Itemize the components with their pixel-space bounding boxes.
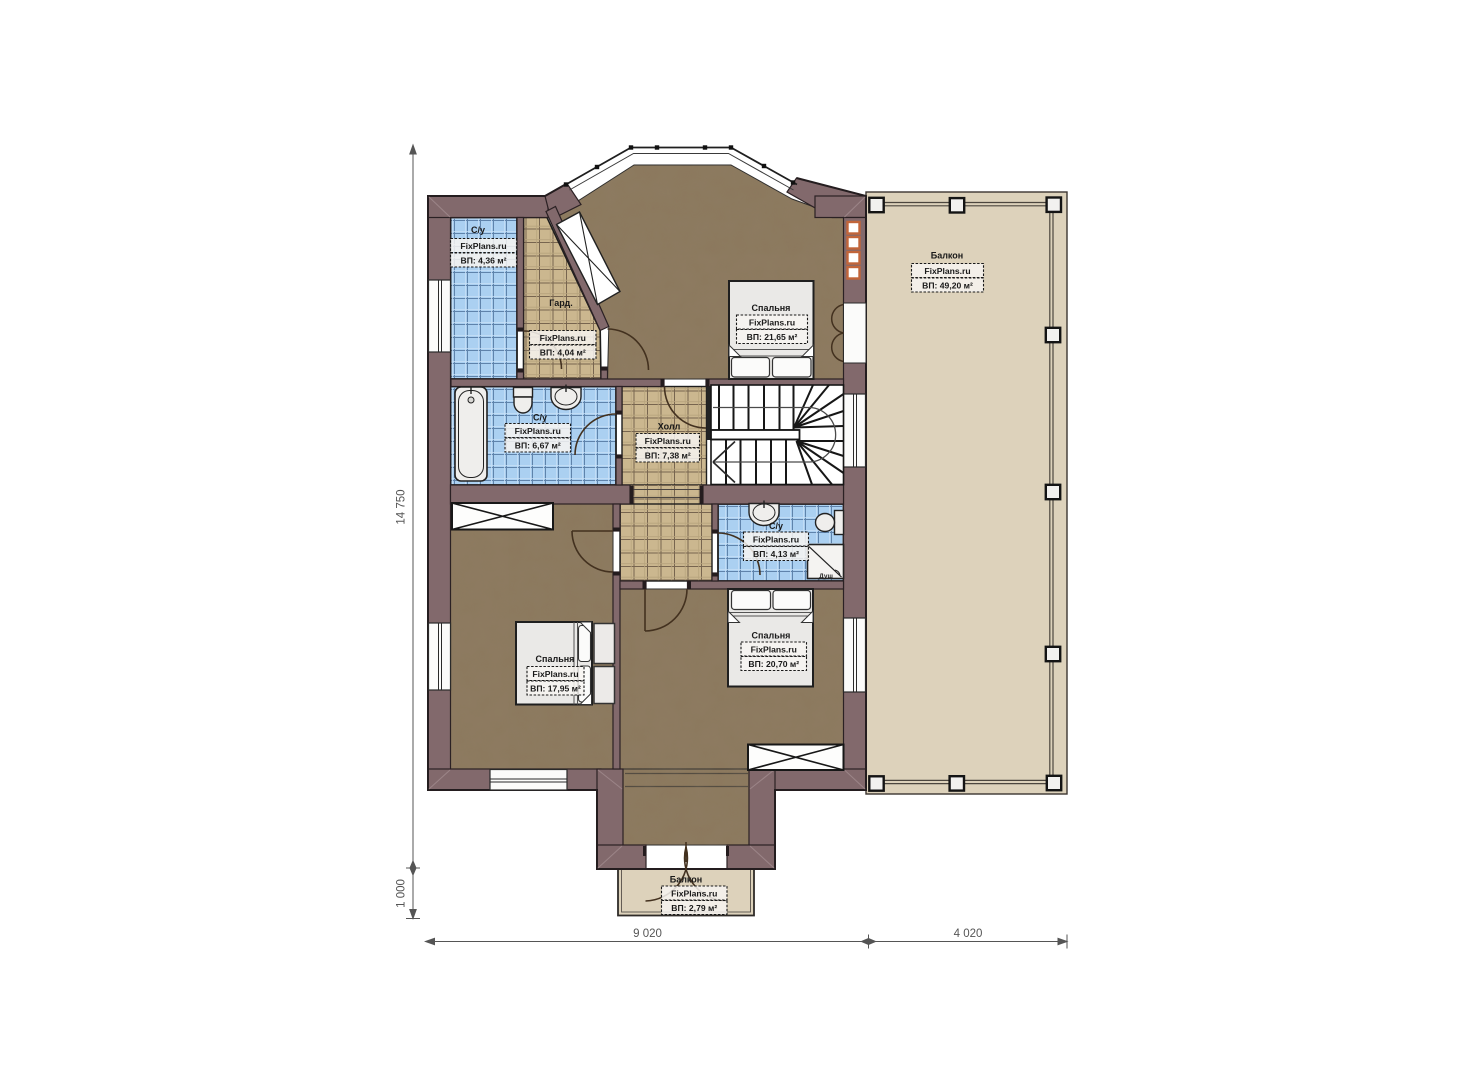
svg-text:4 020: 4 020 <box>954 928 983 940</box>
svg-text:FixPlans.ru: FixPlans.ru <box>532 669 578 679</box>
svg-text:ВП: 4,36 м²: ВП: 4,36 м² <box>461 256 507 266</box>
svg-text:С/у: С/у <box>533 413 547 423</box>
svg-text:Спальня: Спальня <box>752 631 791 641</box>
svg-text:FixPlans.ru: FixPlans.ru <box>645 436 691 446</box>
svg-text:FixPlans.ru: FixPlans.ru <box>751 645 797 655</box>
svg-text:FixPlans.ru: FixPlans.ru <box>515 426 561 436</box>
svg-text:С/у: С/у <box>769 521 783 531</box>
svg-text:1 000: 1 000 <box>396 879 408 908</box>
svg-text:9 020: 9 020 <box>633 928 662 940</box>
svg-text:ВП: 6,67 м²: ВП: 6,67 м² <box>515 441 561 451</box>
svg-text:ВП: 7,38 м²: ВП: 7,38 м² <box>645 451 691 461</box>
svg-text:С/у: С/у <box>471 225 485 235</box>
svg-text:Балкон: Балкон <box>931 251 964 261</box>
svg-text:ВП: 2,79 м²: ВП: 2,79 м² <box>671 903 717 913</box>
svg-text:Гард.: Гард. <box>549 298 572 308</box>
svg-text:FixPlans.ru: FixPlans.ru <box>753 535 799 545</box>
svg-text:ВП: 17,95 м²: ВП: 17,95 м² <box>530 684 581 694</box>
svg-text:14 750: 14 750 <box>396 489 408 524</box>
svg-text:Балкон: Балкон <box>670 875 703 885</box>
svg-text:FixPlans.ru: FixPlans.ru <box>924 266 970 276</box>
svg-text:Душ: Душ <box>819 573 833 580</box>
svg-text:ВП: 4,04 м²: ВП: 4,04 м² <box>540 348 586 358</box>
svg-text:FixPlans.ru: FixPlans.ru <box>460 241 506 251</box>
svg-text:Холл: Холл <box>658 422 681 432</box>
svg-text:ВП: 49,20 м²: ВП: 49,20 м² <box>922 281 973 291</box>
svg-text:ВП: 4,13 м²: ВП: 4,13 м² <box>753 549 799 559</box>
svg-text:ВП: 20,70 м²: ВП: 20,70 м² <box>748 659 799 669</box>
svg-text:Спальня: Спальня <box>536 654 575 664</box>
svg-text:FixPlans.ru: FixPlans.ru <box>671 889 717 899</box>
svg-text:FixPlans.ru: FixPlans.ru <box>540 333 586 343</box>
svg-text:ВП: 21,65 м²: ВП: 21,65 м² <box>747 332 798 342</box>
svg-text:Спальня: Спальня <box>752 303 791 313</box>
svg-text:FixPlans.ru: FixPlans.ru <box>749 318 795 328</box>
